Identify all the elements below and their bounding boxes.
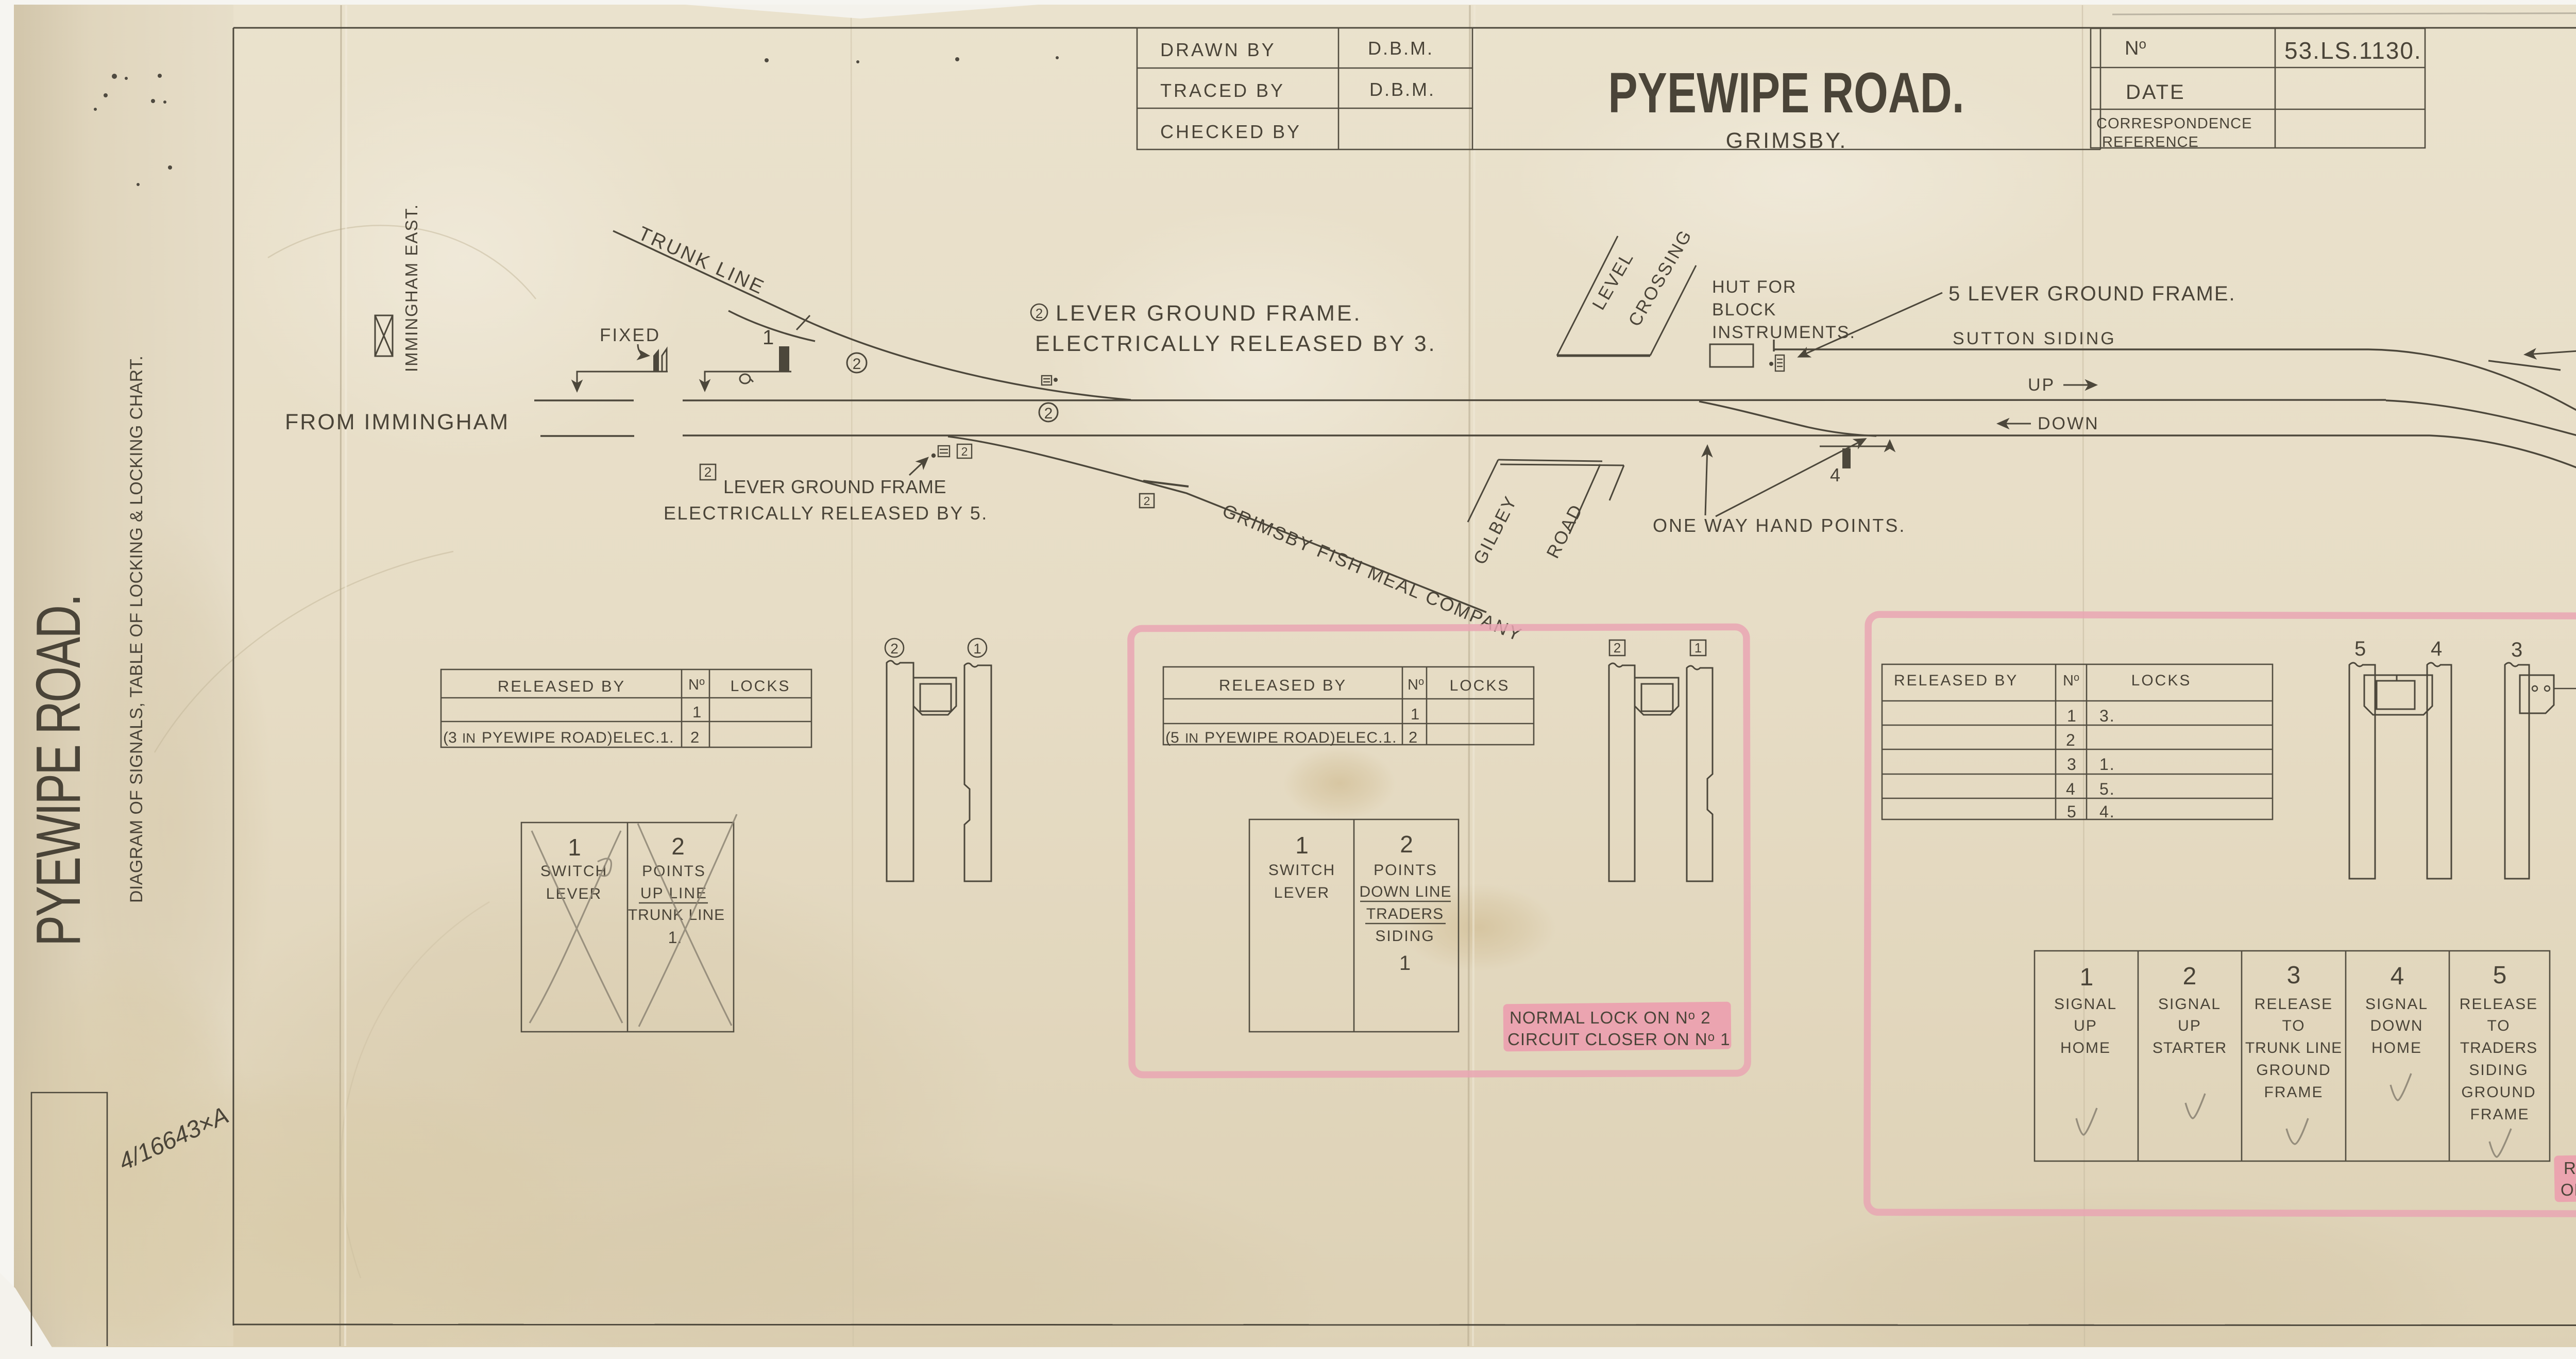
svg-text:POINTS: POINTS: [642, 863, 706, 880]
svg-text:LEVER: LEVER: [546, 885, 602, 902]
svg-text:1: 1: [1295, 832, 1309, 859]
svg-text:LOCKS: LOCKS: [2131, 672, 2192, 689]
svg-text:TRUNK LINE: TRUNK LINE: [2245, 1039, 2342, 1056]
svg-text:PYEWIPE ROAD)ELEC.1.: PYEWIPE ROAD)ELEC.1.: [1205, 729, 1397, 746]
svg-text:2: 2: [961, 445, 968, 458]
svg-text:STARTER: STARTER: [2153, 1039, 2227, 1056]
svg-text:2: 2: [1614, 640, 1621, 656]
svg-text:(3: (3: [443, 729, 457, 746]
svg-text:1: 1: [1399, 952, 1411, 975]
svg-text:1.: 1.: [668, 928, 682, 947]
svg-text:2: 2: [1044, 405, 1053, 422]
svg-text:TO: TO: [2487, 1017, 2510, 1034]
svg-text:3: 3: [2511, 639, 2522, 661]
svg-text:DIAGRAM OF SIGNALS, TABLE OF L: DIAGRAM OF SIGNALS, TABLE OF LOCKING & L…: [127, 356, 146, 903]
svg-text:CHECKED BY: CHECKED BY: [1160, 121, 1301, 142]
svg-text:DATE: DATE: [2126, 81, 2185, 104]
svg-text:NORMAL LOCK ON No 2: NORMAL LOCK ON No 2: [1510, 1008, 1711, 1027]
svg-text:HUT FOR: HUT FOR: [1712, 277, 1797, 297]
svg-text:SWITCH: SWITCH: [1268, 862, 1335, 879]
svg-text:LEVER GROUND FRAME: LEVER GROUND FRAME: [723, 476, 946, 497]
svg-text:4: 4: [1830, 464, 1840, 485]
svg-text:5.: 5.: [2099, 780, 2115, 798]
svg-text:1: 1: [1694, 640, 1702, 656]
svg-text:1: 1: [973, 641, 981, 657]
svg-text:DOWN: DOWN: [2370, 1017, 2424, 1034]
svg-text:GRIMSBY.: GRIMSBY.: [1726, 128, 1848, 153]
svg-text:2: 2: [1144, 494, 1150, 508]
svg-text:REVERSE LOCK: REVERSE LOCK: [2564, 1159, 2576, 1178]
svg-text:PYEWIPE ROAD)ELEC.1.: PYEWIPE ROAD)ELEC.1.: [482, 729, 674, 746]
svg-text:2: 2: [853, 356, 861, 373]
svg-text:D.B.M.: D.B.M.: [1368, 38, 1434, 59]
svg-text:1: 1: [2080, 964, 2094, 991]
svg-text:LEVER: LEVER: [1274, 884, 1330, 901]
svg-text:IN: IN: [462, 730, 476, 746]
svg-text:LOCKS: LOCKS: [731, 678, 791, 695]
svg-text:GROUND: GROUND: [2256, 1062, 2331, 1079]
svg-text:5: 5: [2067, 802, 2076, 821]
svg-text:1: 1: [1411, 705, 1419, 723]
svg-text:4: 4: [2431, 637, 2442, 660]
svg-text:TO: TO: [2282, 1017, 2305, 1034]
svg-text:CORRESPONDENCE: CORRESPONDENCE: [2096, 115, 2252, 132]
svg-text:5 LEVER GROUND FRAME.: 5 LEVER GROUND FRAME.: [1948, 282, 2236, 305]
svg-text:DOWN LINE: DOWN LINE: [1359, 883, 1451, 900]
svg-text:UP: UP: [2178, 1017, 2201, 1034]
svg-text:FRAME: FRAME: [2264, 1084, 2324, 1101]
svg-text:D.B.M.: D.B.M.: [1369, 79, 1435, 100]
svg-text:PYEWIPE ROAD.: PYEWIPE ROAD.: [1608, 61, 1964, 125]
svg-text:ON Nos 3 & 5: ON Nos 3 & 5: [2561, 1180, 2576, 1199]
svg-text:LOCKS: LOCKS: [1450, 677, 1510, 694]
svg-text:1: 1: [568, 834, 581, 861]
svg-text:FRAME: FRAME: [2470, 1106, 2530, 1123]
svg-text:CIRCUIT CLOSER ON No 1: CIRCUIT CLOSER ON No 1: [1507, 1030, 1731, 1049]
svg-text:3: 3: [2067, 755, 2076, 774]
svg-text:DRAWN BY: DRAWN BY: [1160, 39, 1276, 60]
svg-text:ELECTRICALLY RELEASED BY 3.: ELECTRICALLY RELEASED BY 3.: [1035, 331, 1437, 356]
svg-text:2: 2: [1400, 831, 1413, 858]
svg-text:GROUND: GROUND: [2461, 1084, 2536, 1101]
svg-text:2: 2: [671, 833, 685, 860]
svg-text:2: 2: [2183, 963, 2197, 990]
svg-text:TRACED BY: TRACED BY: [1160, 80, 1285, 101]
svg-text:FIXED: FIXED: [600, 325, 660, 345]
svg-text:BLOCK: BLOCK: [1712, 300, 1776, 320]
svg-text:RELEASE: RELEASE: [2255, 996, 2333, 1013]
svg-text:2: 2: [890, 641, 899, 657]
svg-text:2: 2: [690, 728, 699, 746]
svg-text:TRADERS: TRADERS: [1366, 905, 1444, 922]
svg-text:(5: (5: [1165, 729, 1179, 746]
svg-text:DOWN: DOWN: [2038, 414, 2099, 433]
svg-text:RELEASED BY: RELEASED BY: [1894, 672, 2018, 689]
svg-text:4: 4: [2066, 780, 2075, 798]
svg-text:ONE WAY HAND POINTS.: ONE WAY HAND POINTS.: [1653, 515, 1906, 536]
svg-text:4.: 4.: [2099, 802, 2115, 821]
svg-text:REFERENCE: REFERENCE: [2102, 134, 2199, 150]
svg-text:3.: 3.: [2099, 707, 2115, 725]
svg-text:HOME: HOME: [2060, 1039, 2111, 1056]
svg-text:5: 5: [2354, 637, 2366, 660]
svg-text:LEVER GROUND FRAME.: LEVER GROUND FRAME.: [1056, 301, 1362, 326]
svg-text:3: 3: [2287, 962, 2301, 989]
svg-text:1.: 1.: [2099, 755, 2115, 774]
svg-text:UP LINE: UP LINE: [640, 885, 707, 902]
svg-text:UP: UP: [2028, 375, 2055, 395]
svg-text:2: 2: [704, 464, 711, 480]
svg-text:2: 2: [1036, 306, 1043, 321]
svg-text:SIDING: SIDING: [1375, 928, 1434, 945]
svg-text:ELECTRICALLY RELEASED BY 5.: ELECTRICALLY RELEASED BY 5.: [664, 502, 988, 524]
svg-text:RELEASED BY: RELEASED BY: [498, 677, 625, 695]
svg-text:1: 1: [692, 703, 701, 721]
svg-text:1: 1: [2067, 707, 2076, 725]
svg-text:TRADERS: TRADERS: [2460, 1039, 2537, 1056]
svg-text:POINTS: POINTS: [1374, 862, 1437, 879]
svg-text:UP: UP: [2074, 1017, 2097, 1034]
svg-text:INSTRUMENTS.: INSTRUMENTS.: [1712, 323, 1856, 342]
svg-text:4: 4: [2391, 963, 2404, 990]
svg-text:FROM IMMINGHAM: FROM IMMINGHAM: [285, 410, 510, 434]
svg-text:HOME: HOME: [2371, 1039, 2422, 1056]
svg-text:SUTTON SIDING: SUTTON SIDING: [1953, 329, 2116, 348]
svg-text:RELEASE: RELEASE: [2460, 996, 2538, 1013]
svg-text:2: 2: [2066, 731, 2075, 749]
svg-text:SIGNAL: SIGNAL: [2365, 996, 2428, 1013]
svg-text:SIGNAL: SIGNAL: [2158, 996, 2221, 1013]
svg-text:PYEWIPE ROAD.: PYEWIPE ROAD.: [23, 595, 93, 946]
svg-text:SIDING: SIDING: [2469, 1062, 2528, 1079]
svg-text:IN: IN: [1185, 730, 1198, 746]
svg-text:RELEASED BY: RELEASED BY: [1219, 676, 1347, 694]
svg-text:SIGNAL: SIGNAL: [2054, 996, 2117, 1013]
svg-text:2: 2: [1409, 728, 1417, 746]
svg-text:53.LS.1130.: 53.LS.1130.: [2284, 37, 2422, 64]
svg-text:IMMINGHAM EAST.: IMMINGHAM EAST.: [402, 204, 421, 372]
svg-text:5: 5: [2493, 962, 2507, 989]
